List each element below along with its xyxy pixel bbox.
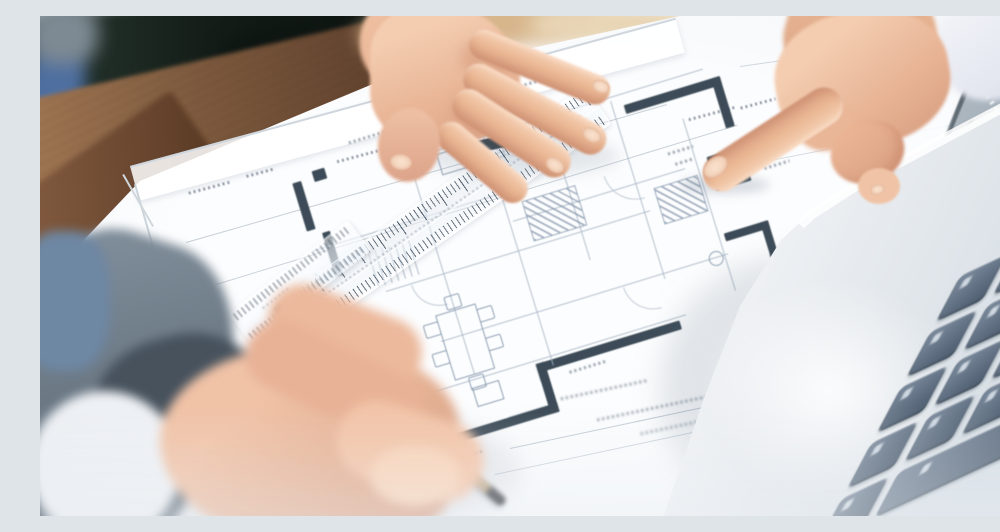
suit-sleeve-edge xyxy=(40,231,110,371)
knuckle-highlight xyxy=(370,446,460,506)
pencil-holding-hand-group xyxy=(40,16,1000,516)
desk-photo xyxy=(40,16,1000,516)
